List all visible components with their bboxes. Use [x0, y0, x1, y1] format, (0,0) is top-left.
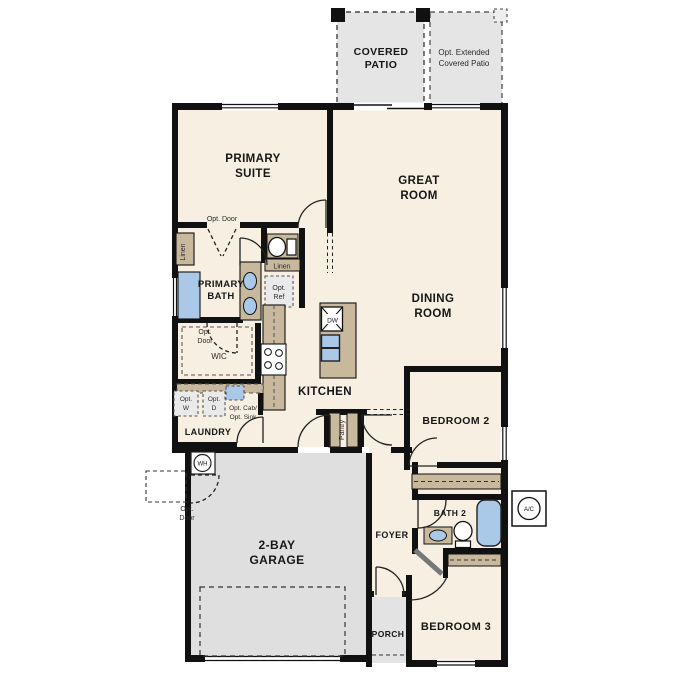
- opt-cab-sink-label: Opt. Cab/: [229, 405, 257, 412]
- garage-door: [205, 657, 340, 661]
- opt-door-wic-label2: Door: [197, 338, 213, 345]
- garage-label2: GARAGE: [249, 553, 304, 567]
- covered-patio-label: COVERED: [354, 46, 409, 58]
- dining-room-label: DINING: [412, 293, 455, 305]
- foyer-label: FOYER: [375, 530, 408, 540]
- patio-post-right: [416, 8, 430, 22]
- wic-label: WIC: [211, 352, 227, 361]
- floor-plan-drawing: COVERED PATIO Opt. Extended Covered Pati…: [0, 0, 687, 687]
- wall-bath2-bottom: [443, 548, 503, 554]
- primary-suite-label: PRIMARY: [225, 153, 280, 165]
- wall-porch-front-left: [366, 591, 374, 597]
- wh-label: WH: [198, 462, 208, 468]
- opt-door-garage-label2: Door: [179, 515, 195, 522]
- window-bedroom3: [437, 660, 475, 668]
- covered-patio-label2: PATIO: [365, 59, 398, 71]
- bath2-tub: [477, 500, 501, 546]
- wall-bed3-closet-left: [443, 548, 448, 578]
- great-room-label: GREAT: [398, 175, 439, 187]
- bath2-label: BATH 2: [434, 508, 466, 518]
- opt-extended-patio-label2: Covered Patio: [439, 59, 490, 68]
- opt-d-label: Opt.: [208, 396, 220, 403]
- laundry-label: LAUNDRY: [185, 427, 231, 437]
- wall-bed2-top: [406, 366, 508, 372]
- opt-door-suite-label: Opt. Door: [207, 216, 238, 223]
- patio-post-left: [331, 8, 345, 22]
- wall-right-lower: [501, 460, 508, 667]
- wall-bed3-left: [406, 575, 412, 667]
- vanity-sink-1-icon: [244, 273, 257, 290]
- garage-label: 2-BAY: [259, 538, 296, 552]
- wall-bed2-bottom: [437, 462, 503, 468]
- wall-garage-left: [185, 447, 191, 662]
- ac-label: A/C: [524, 507, 535, 513]
- wall-bed2-left: [404, 366, 410, 470]
- wall-top-4: [424, 103, 432, 110]
- opt-door-garage-outline: [146, 471, 186, 502]
- bedroom2-closet: [412, 474, 501, 489]
- kitchen-label: KITCHEN: [298, 386, 352, 398]
- wall-laundry-bottom: [172, 442, 237, 448]
- wall-right-mid: [501, 348, 508, 427]
- primary-bath-label: PRIMARY: [198, 279, 245, 290]
- window-primary-suite: [222, 103, 278, 111]
- window-dining: [501, 288, 509, 348]
- linen-left-label: Linen: [180, 243, 187, 260]
- vanity-sink-2-icon: [244, 298, 257, 315]
- opt-door-garage-label: Opt.: [180, 506, 193, 513]
- opt-dryer-box: [203, 391, 225, 416]
- wall-suite-bottom-2: [240, 222, 298, 228]
- porch-label: PORCH: [372, 629, 405, 639]
- opt-laundry-sink: [226, 386, 244, 400]
- linen-hall-label: Linen: [273, 264, 290, 271]
- shower: [178, 272, 200, 319]
- wall-suite-bottom-1: [178, 222, 207, 228]
- bedroom3-closet: [448, 554, 501, 566]
- opt-cab-sink-label2: Opt. Sink: [230, 414, 257, 421]
- opt-d-label2: D: [212, 405, 217, 412]
- wall-top-5: [480, 103, 508, 110]
- primary-suite-label2: SUITE: [235, 168, 271, 180]
- floor-plan-page: COVERED PATIO Opt. Extended Covered Pati…: [0, 0, 687, 687]
- opt-ref-label2: Ref: [274, 294, 285, 301]
- bedroom3-label: BEDROOM 3: [421, 621, 491, 633]
- opt-washer-box: [174, 391, 198, 416]
- island-sink: [322, 335, 340, 361]
- pantry-shelf-right: [347, 413, 358, 447]
- wall-right-upper: [501, 110, 508, 288]
- great-room-label2: ROOM: [400, 190, 437, 202]
- wall-bottom-bed3-right: [475, 660, 508, 667]
- wall-top-2: [278, 103, 327, 110]
- bath2-toilet-tank: [456, 541, 471, 548]
- wall-garage-bottom-left: [185, 655, 205, 662]
- wall-bath2-top: [412, 494, 503, 500]
- pantry-label: Pantry: [339, 419, 346, 440]
- cooktop: [261, 344, 286, 375]
- dw-label: DW: [327, 318, 339, 325]
- primary-bath-label2: BATH: [207, 291, 234, 302]
- window-great-room: [432, 103, 480, 111]
- opt-w-label2: W: [183, 405, 190, 412]
- primary-toilet-tank: [287, 239, 296, 255]
- opt-door-wic-label: Opt.: [198, 329, 211, 336]
- wall-garage-top-2: [330, 447, 362, 453]
- wall-top-1: [172, 103, 222, 110]
- dining-room-label2: ROOM: [414, 308, 451, 320]
- window-primary-bath: [172, 278, 179, 316]
- patio-corner-notch: [494, 9, 507, 22]
- bath2-toilet-icon: [454, 522, 472, 541]
- opt-w-label: Opt.: [180, 396, 192, 403]
- opt-ref-label: Opt.: [272, 285, 285, 292]
- primary-toilet-icon: [269, 238, 286, 257]
- bath2-sink-icon: [430, 530, 447, 541]
- opt-extended-patio-label: Opt. Extended: [438, 48, 489, 57]
- wall-wic-right: [255, 323, 261, 385]
- window-bedroom2: [501, 427, 509, 460]
- bedroom2-label: BEDROOM 2: [422, 415, 489, 427]
- wall-greatroom-left: [327, 110, 333, 233]
- sliding-door-great-room: [354, 103, 424, 111]
